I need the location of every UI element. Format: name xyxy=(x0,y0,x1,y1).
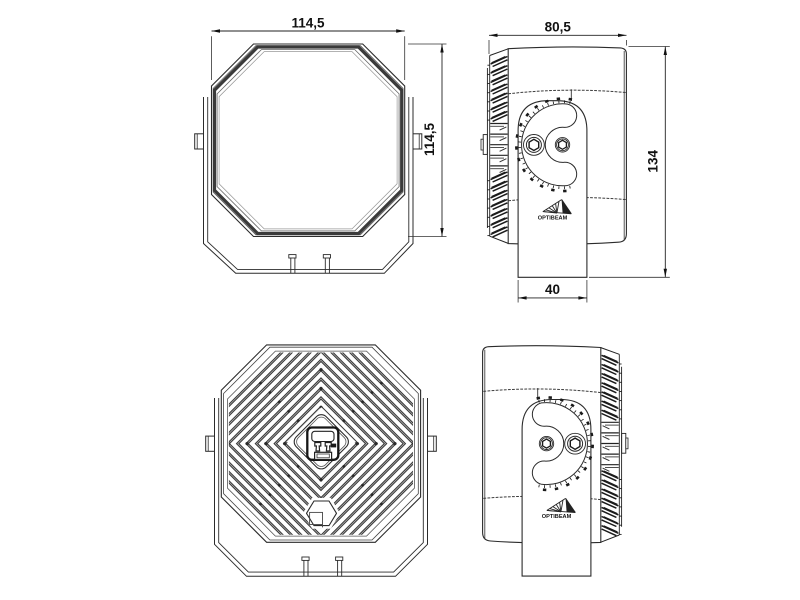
svg-text:134: 134 xyxy=(646,150,661,173)
svg-text:OPTIBEAM: OPTIBEAM xyxy=(542,514,572,520)
svg-text:114,5: 114,5 xyxy=(422,122,437,156)
svg-text:80,5: 80,5 xyxy=(545,19,572,34)
svg-text:40: 40 xyxy=(545,282,560,297)
svg-text:114,5: 114,5 xyxy=(291,15,325,30)
svg-text:OPTIBEAM: OPTIBEAM xyxy=(538,215,568,221)
